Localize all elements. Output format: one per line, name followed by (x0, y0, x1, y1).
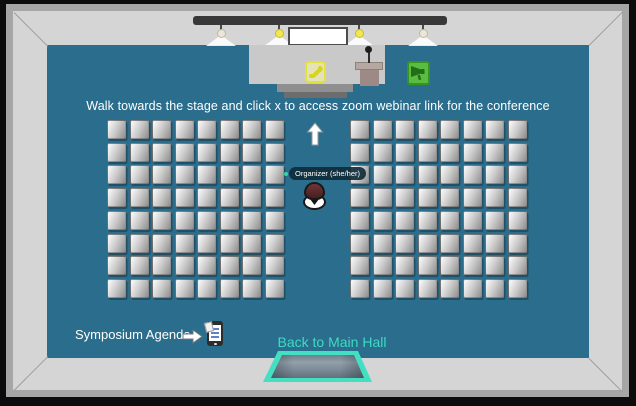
seat (175, 188, 194, 207)
seat (107, 165, 126, 184)
seat (242, 279, 261, 298)
seat (175, 120, 194, 139)
seat (130, 234, 149, 253)
seat (373, 188, 392, 207)
seat (242, 188, 261, 207)
seat (350, 279, 369, 298)
seat (350, 256, 369, 275)
microphone-icon (365, 46, 372, 53)
seat (508, 256, 527, 275)
seat (463, 143, 482, 162)
seat (175, 143, 194, 162)
seat (152, 120, 171, 139)
seat (418, 188, 437, 207)
phone-receiver-icon (309, 74, 315, 78)
seat (508, 279, 527, 298)
seat (107, 188, 126, 207)
seat (418, 143, 437, 162)
seat (107, 256, 126, 275)
seat (152, 211, 171, 230)
seat (152, 165, 171, 184)
seat (242, 211, 261, 230)
seat (440, 279, 459, 298)
seat (373, 211, 392, 230)
seat (373, 165, 392, 184)
seat (373, 256, 392, 275)
seat (197, 256, 216, 275)
stage-whiteboard (288, 27, 348, 46)
seat (130, 211, 149, 230)
seat (130, 120, 149, 139)
zoom-link-phone-icon[interactable] (305, 61, 326, 83)
seat (220, 211, 239, 230)
seat (395, 143, 414, 162)
seat (197, 211, 216, 230)
seat (152, 234, 171, 253)
stage-light-icon (419, 29, 428, 38)
seat (130, 256, 149, 275)
stage-step (277, 84, 353, 92)
seat (485, 211, 504, 230)
document-line (211, 336, 219, 338)
seat (418, 279, 437, 298)
seat (418, 256, 437, 275)
seat (152, 279, 171, 298)
podium (360, 70, 379, 86)
seat (220, 143, 239, 162)
seat (418, 165, 437, 184)
seat (107, 234, 126, 253)
seat (485, 188, 504, 207)
megaphone-icon[interactable] (407, 61, 430, 85)
seat (395, 165, 414, 184)
seat (197, 279, 216, 298)
seat (485, 256, 504, 275)
seat (175, 211, 194, 230)
seat (152, 143, 171, 162)
instruction-text: Walk towards the stage and click x to ac… (47, 99, 589, 113)
seat (418, 234, 437, 253)
seat (395, 211, 414, 230)
agenda-document-icon[interactable] (205, 320, 224, 347)
seat (220, 120, 239, 139)
seat (373, 279, 392, 298)
seat (265, 234, 284, 253)
seat-block-right (350, 120, 526, 302)
seat (463, 211, 482, 230)
seat (265, 279, 284, 298)
seat (242, 256, 261, 275)
seat (440, 165, 459, 184)
stage-light-icon (355, 29, 364, 38)
seat (220, 188, 239, 207)
seat (175, 165, 194, 184)
seat (508, 120, 527, 139)
seat (440, 256, 459, 275)
avatar (304, 182, 325, 200)
seat (395, 234, 414, 253)
seat (350, 120, 369, 139)
seat (175, 279, 194, 298)
status-dot (284, 172, 288, 176)
seat (152, 256, 171, 275)
seat (220, 279, 239, 298)
seat (265, 165, 284, 184)
seat (418, 120, 437, 139)
seat (508, 143, 527, 162)
seat (265, 188, 284, 207)
seat (395, 188, 414, 207)
seat (350, 211, 369, 230)
seat (485, 165, 504, 184)
seat (265, 143, 284, 162)
right-arrow-icon (182, 329, 204, 349)
phone-receiver-icon (318, 66, 322, 72)
seat (485, 120, 504, 139)
seat (373, 234, 392, 253)
seat (485, 279, 504, 298)
seat (242, 165, 261, 184)
seat (373, 143, 392, 162)
seat (197, 143, 216, 162)
seat (395, 120, 414, 139)
seat (175, 234, 194, 253)
seat (418, 211, 437, 230)
seat (130, 188, 149, 207)
seat (440, 234, 459, 253)
seat (242, 120, 261, 139)
seat (220, 234, 239, 253)
player-name-tag: Organizer (she/her) (289, 167, 366, 180)
podium (355, 62, 383, 70)
seat (107, 120, 126, 139)
seat (175, 256, 194, 275)
seat (395, 256, 414, 275)
up-arrow-icon (306, 122, 324, 152)
seat (107, 143, 126, 162)
seat (350, 234, 369, 253)
document-line (211, 332, 219, 334)
seat (440, 120, 459, 139)
seat (350, 143, 369, 162)
seat (440, 211, 459, 230)
back-to-main-hall-label: Back to Main Hall (252, 334, 412, 350)
main-hall-portal[interactable] (258, 349, 376, 384)
seat (242, 143, 261, 162)
seat (463, 120, 482, 139)
seat (265, 256, 284, 275)
seat (152, 188, 171, 207)
seat (508, 234, 527, 253)
device-home-button (214, 343, 217, 345)
seat (463, 234, 482, 253)
seat (485, 234, 504, 253)
seat (463, 165, 482, 184)
seat (265, 120, 284, 139)
seat (107, 279, 126, 298)
seat (265, 211, 284, 230)
seat (197, 120, 216, 139)
seat (107, 211, 126, 230)
stage-light-icon (217, 29, 226, 38)
seat (197, 165, 216, 184)
seat (508, 188, 527, 207)
seat (373, 120, 392, 139)
seat (130, 143, 149, 162)
stage-step (284, 92, 347, 98)
symposium-agenda-label: Symposium Agenda (75, 327, 191, 342)
seat (220, 165, 239, 184)
seat (220, 256, 239, 275)
seat (463, 188, 482, 207)
seat (242, 234, 261, 253)
seat (440, 188, 459, 207)
seat (197, 234, 216, 253)
seat (508, 165, 527, 184)
seat (197, 188, 216, 207)
stage-light-icon (275, 29, 284, 38)
seat (508, 211, 527, 230)
light-truss (193, 16, 447, 25)
seat (463, 279, 482, 298)
seat (130, 165, 149, 184)
seat (350, 188, 369, 207)
seat (440, 143, 459, 162)
seat-block-left (107, 120, 283, 302)
seat (485, 143, 504, 162)
seat (130, 279, 149, 298)
seat (395, 279, 414, 298)
seat (463, 256, 482, 275)
